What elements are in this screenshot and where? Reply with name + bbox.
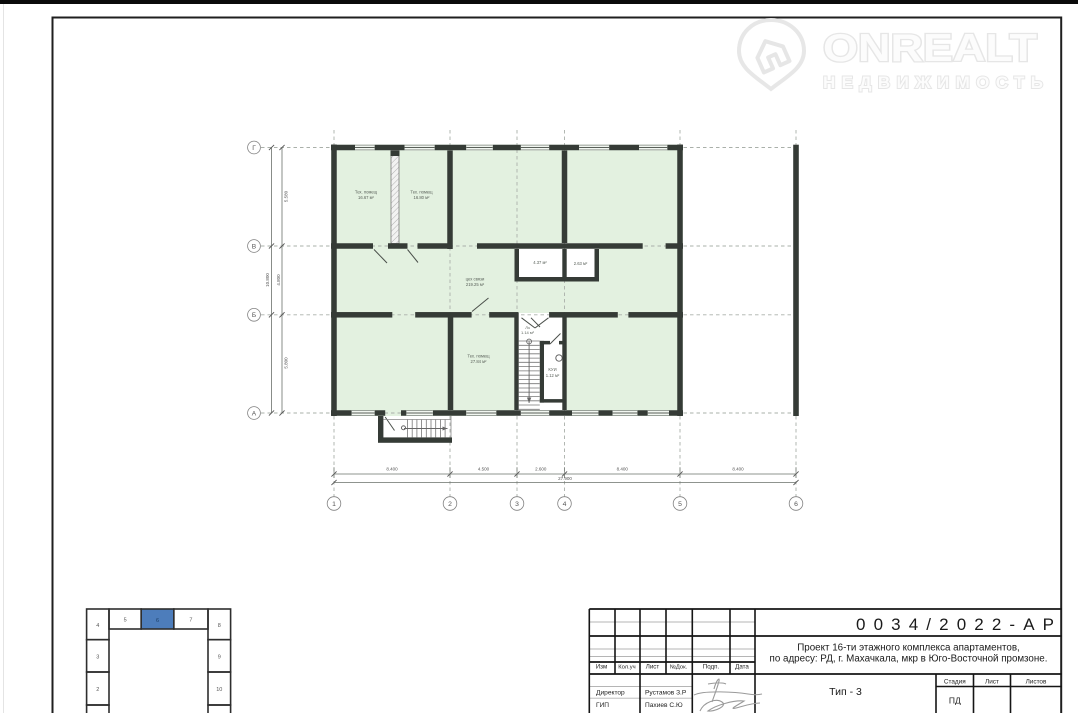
svg-text:7: 7 — [189, 617, 192, 623]
svg-text:8.400: 8.400 — [386, 467, 398, 472]
svg-text:Тип - 3: Тип - 3 — [829, 686, 862, 698]
svg-text:Пахиев С.Ю: Пахиев С.Ю — [645, 702, 683, 709]
svg-text:10: 10 — [216, 687, 222, 693]
svg-text:5: 5 — [678, 501, 682, 508]
svg-text:Подп.: Подп. — [703, 664, 720, 671]
svg-text:2.600: 2.600 — [535, 467, 547, 472]
svg-text:4.37 м²: 4.37 м² — [533, 260, 547, 265]
svg-text:8.400: 8.400 — [732, 467, 744, 472]
svg-text:А: А — [252, 410, 257, 417]
svg-text:Стадия: Стадия — [944, 679, 966, 686]
svg-text:Г: Г — [252, 145, 256, 152]
svg-text:5.580: 5.580 — [284, 190, 289, 202]
svg-text:Проект 16-ти этажного комплекс: Проект 16-ти этажного комплекса апартаме… — [797, 643, 1020, 654]
svg-text:6: 6 — [156, 618, 159, 624]
svg-text:219.25 м²: 219.25 м² — [466, 282, 485, 287]
svg-text:Кол.уч: Кол.уч — [618, 665, 635, 671]
svg-text:16.67 м²: 16.67 м² — [358, 195, 375, 200]
svg-text:9: 9 — [218, 654, 221, 660]
svg-text:10.800: 10.800 — [265, 273, 270, 287]
svg-text:16.80 м²: 16.80 м² — [414, 195, 431, 200]
svg-text:Дата: Дата — [735, 664, 749, 671]
svg-text:№Док.: №Док. — [670, 665, 688, 671]
svg-text:Тех. помещ: Тех. помещ — [410, 190, 433, 195]
svg-text:6: 6 — [794, 501, 798, 508]
svg-text:3: 3 — [96, 654, 99, 660]
svg-text:5.800: 5.800 — [284, 357, 289, 369]
svg-text:Тех. помещ: Тех. помещ — [355, 190, 378, 195]
svg-text:по адресу: РД, г. Махачкала, м: по адресу: РД, г. Махачкала, мкр в Юго-В… — [770, 654, 1048, 665]
svg-text:Рустамов З.Р: Рустамов З.Р — [645, 690, 687, 697]
svg-text:ONREALT: ONREALT — [823, 27, 1037, 70]
svg-text:Б: Б — [252, 312, 256, 319]
svg-text:1.14 м²: 1.14 м² — [521, 330, 535, 335]
svg-text:27.900: 27.900 — [558, 476, 572, 481]
svg-text:4.800: 4.800 — [276, 274, 281, 286]
svg-text:2: 2 — [448, 501, 452, 508]
svg-text:В: В — [252, 243, 257, 250]
svg-text:ПД: ПД — [949, 696, 961, 706]
svg-text:4: 4 — [563, 501, 567, 508]
svg-text:5: 5 — [124, 617, 127, 623]
svg-text:8.400: 8.400 — [617, 467, 629, 472]
svg-text:Директор: Директор — [596, 690, 625, 697]
svg-text:3: 3 — [515, 501, 519, 508]
svg-text:8: 8 — [218, 623, 221, 629]
svg-text:27.84 м²: 27.84 м² — [471, 359, 488, 364]
svg-text:Лист: Лист — [646, 664, 660, 671]
svg-text:2.63 м²: 2.63 м² — [574, 261, 588, 266]
svg-text:цех связи: цех связи — [466, 277, 485, 282]
svg-text:2: 2 — [96, 687, 99, 693]
svg-text:4: 4 — [96, 623, 99, 629]
svg-text:4.500: 4.500 — [478, 467, 490, 472]
svg-text:Лист: Лист — [985, 679, 999, 686]
svg-text:1.12 м²: 1.12 м² — [546, 373, 560, 378]
svg-text:ГИП: ГИП — [596, 702, 609, 709]
svg-text:КУИ: КУИ — [548, 367, 556, 372]
svg-text:Листов: Листов — [1026, 679, 1047, 686]
svg-text:1: 1 — [332, 501, 336, 508]
svg-text:Изм: Изм — [596, 664, 608, 671]
svg-text:Тех. помещ: Тех. помещ — [467, 354, 490, 359]
